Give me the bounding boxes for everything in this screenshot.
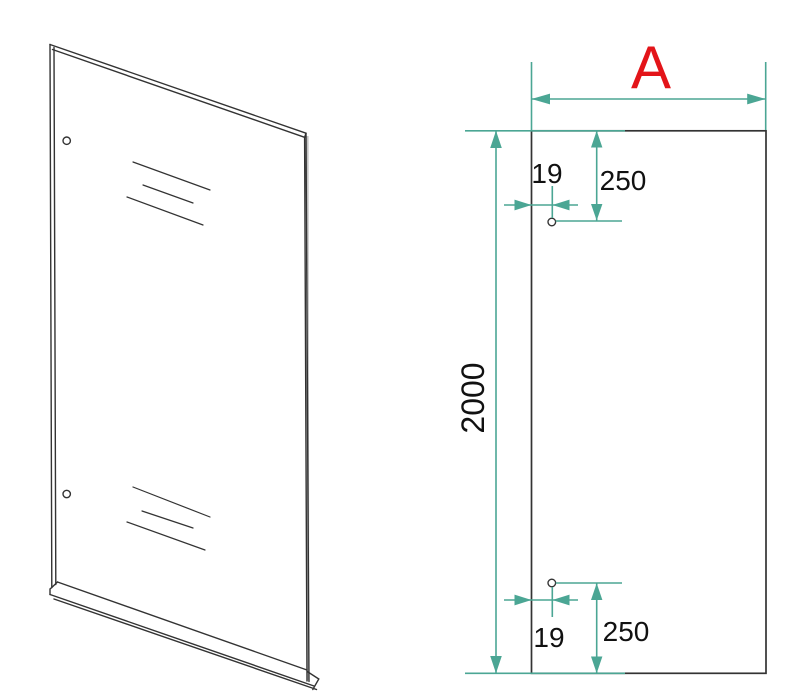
arrow-right-icon [515,595,532,606]
arrow-up-icon [591,583,602,600]
bottom-profile [50,582,319,690]
profile-left-end-face [50,588,52,595]
hole-bottom [548,579,556,587]
panel-left-outer-edge [50,45,52,588]
reflection-marks-upper [127,162,210,225]
profile-left-end-top [52,582,58,588]
top-hole-edge-offset-label: 19 [531,158,562,189]
arrow-left-icon [532,94,551,105]
profile-floor-edge [54,599,317,690]
reflection-marks-lower [127,487,210,550]
width-label: A [631,34,671,101]
reflection-line [142,511,193,528]
reflection-line [127,197,203,225]
panel-hole-top [63,137,70,144]
arrow-down-icon [591,204,602,221]
reflection-line [133,487,210,517]
arrow-right-icon [515,200,532,211]
panel-left-inner-edge [54,48,56,585]
panel-top-inner-edge [53,50,305,138]
drawing-canvas: A 2000 250 [0,0,800,698]
arrow-down-icon [490,656,502,673]
bottom-hole-edge-offset-label: 19 [533,622,564,653]
profile-bottom-edge [50,595,314,687]
arrow-right-icon [747,94,766,105]
panel-top-outer-edge [50,45,306,134]
top-hole-end-offset-label: 250 [600,165,647,196]
bottom-hole-end-offset-label: 250 [603,616,650,647]
iso-view [50,45,319,690]
arrow-left-icon [552,200,569,211]
reflection-line [143,185,193,203]
panel-hole-bottom [63,490,70,497]
arrow-up-icon [591,131,602,148]
arrow-left-icon [552,595,569,606]
arrow-down-icon [591,657,602,674]
panel-front-outline [532,131,767,674]
front-view: A 2000 250 [455,34,766,673]
dim-top-hole: 250 19 [504,131,646,226]
reflection-line [127,522,205,550]
dim-bottom-hole: 250 19 [504,579,649,673]
hole-top [548,218,556,226]
arrow-up-icon [490,131,502,148]
dim-width: A [532,34,766,130]
height-label: 2000 [455,362,491,433]
technical-drawing-page: A 2000 250 [0,0,800,698]
profile-top-edge [58,582,308,670]
